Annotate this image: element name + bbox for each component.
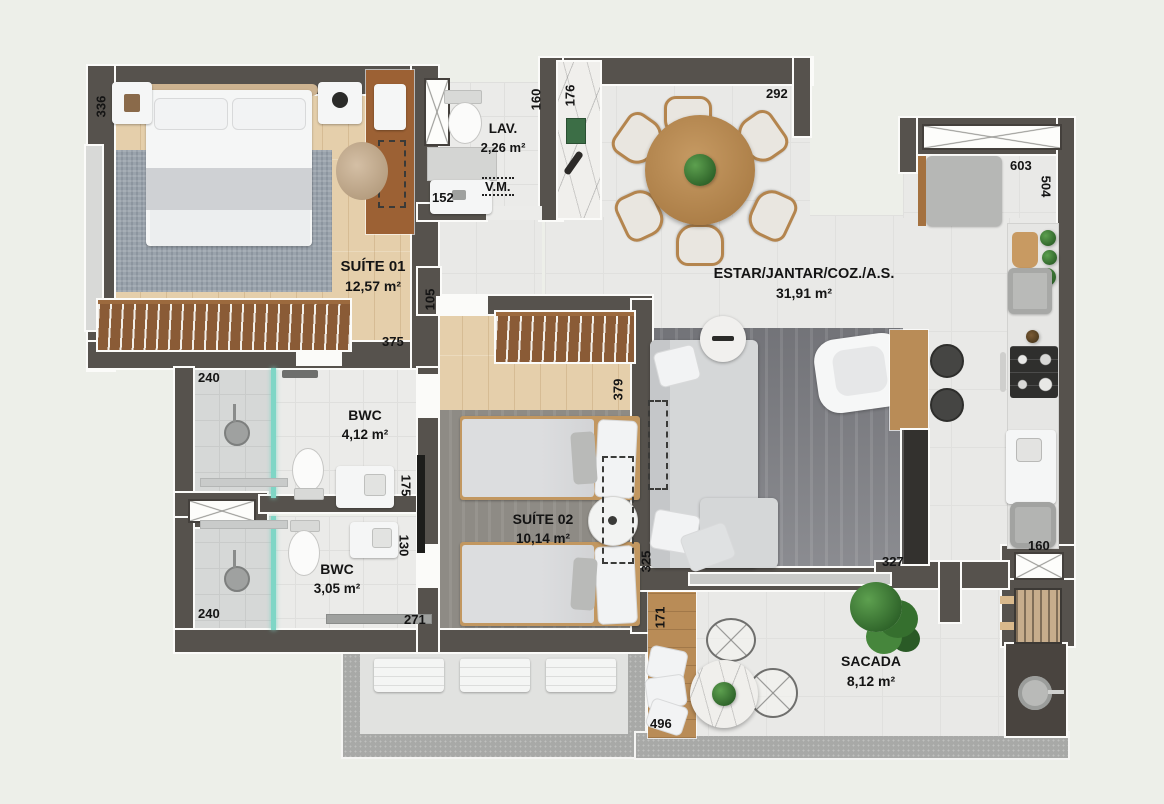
suite02-door-opening [436, 296, 488, 314]
room-label-suite02: SUÍTE 02 10,14 m² [488, 510, 598, 548]
bar-counter [890, 330, 928, 430]
floor-plan-canvas: SUÍTE 01 12,57 m² LAV. 2,26 m² V.M. BWC … [0, 0, 1164, 804]
lav-opening [486, 206, 542, 220]
ac-condenser-unit [460, 658, 530, 692]
wall [794, 58, 810, 136]
dim-175: 175 [398, 464, 414, 506]
room-area: 31,91 m² [696, 284, 912, 304]
pouf-chair [336, 142, 388, 200]
room-area: 2,26 m² [458, 139, 548, 157]
bar-stool [930, 388, 964, 422]
dim-text: 271 [404, 612, 426, 627]
wall [175, 630, 653, 652]
centerpiece-plant-icon [684, 154, 716, 186]
dim-text: 325 [639, 550, 654, 572]
room-area: 4,12 m² [320, 426, 410, 445]
wall [175, 368, 193, 500]
utility-shaft-grille [1014, 588, 1062, 644]
dim-292: 292 [766, 86, 788, 101]
dim-text: 379 [611, 378, 626, 400]
table-plant-icon [712, 682, 736, 706]
ac-condenser-unit [374, 658, 444, 692]
exit-sign [566, 118, 586, 144]
shower-ledge [200, 520, 288, 529]
shower-arm [233, 404, 236, 422]
dim-603: 603 [1010, 158, 1032, 173]
room-name: LAV. [458, 120, 548, 139]
dim-504: 504 [1038, 164, 1054, 208]
dim-text: 336 [94, 95, 109, 117]
ac-condenser-unit [546, 658, 616, 692]
room-name: SUÍTE 02 [488, 510, 598, 530]
fridge [926, 156, 1002, 226]
sink-faucet-icon [452, 190, 466, 200]
dim-text: 160 [529, 88, 544, 110]
room-name: BWC [320, 406, 410, 426]
bed-pillow-small [570, 431, 598, 485]
room-name: SACADA [816, 652, 926, 672]
wall [900, 118, 916, 172]
kettle-icon [1016, 438, 1042, 462]
bwc1-door-opening [418, 374, 438, 418]
shaft-bracket [1000, 622, 1014, 630]
herb-plant-icon [1042, 250, 1057, 265]
wall [940, 562, 960, 622]
dim-text: 175 [399, 474, 414, 496]
room-label-bwc2: BWC 3,05 m² [292, 560, 382, 598]
dim-160-top: 160 [528, 78, 544, 120]
small-plant-icon [1026, 330, 1039, 343]
wall [1058, 118, 1074, 552]
balcony-sliding-door [690, 574, 890, 584]
dim-text: 176 [563, 84, 578, 106]
table-lamp-icon [332, 92, 348, 108]
dim-text: 240 [198, 606, 220, 621]
dim-375: 375 [382, 334, 404, 349]
dim-text: 504 [1039, 175, 1054, 197]
dim-text: 292 [766, 86, 788, 101]
lav-window [424, 78, 450, 146]
oven-handle [1000, 352, 1006, 392]
shower-ledge [200, 478, 288, 487]
bed-blanket [146, 168, 312, 210]
vanity-sink-icon [372, 528, 392, 548]
bathroom-shelf [282, 370, 318, 378]
dim-text: 375 [382, 334, 404, 349]
cutting-board-icon [1012, 232, 1038, 268]
toilet-tank [294, 488, 324, 500]
projection-outline [602, 456, 634, 564]
herb-plant-icon [1040, 230, 1056, 246]
dim-text: 327 [882, 554, 904, 569]
dim-240-bottom: 240 [198, 606, 220, 621]
wire-chair [706, 618, 756, 662]
kitchen-divider-panel [918, 156, 926, 226]
dim-379: 379 [610, 368, 626, 410]
tv-rack [902, 430, 928, 564]
room-name: SUÍTE 01 [298, 256, 448, 277]
dining-chair [676, 224, 724, 266]
suite02-tv-panel [417, 455, 425, 553]
dim-text: 130 [397, 534, 412, 556]
dresser-tv [374, 84, 406, 130]
suite01-wardrobe [98, 300, 350, 350]
service-window [1014, 552, 1064, 580]
wash-basin-icon [1018, 676, 1052, 710]
dim-text: 603 [1010, 158, 1032, 173]
shaft-bracket [1000, 596, 1014, 604]
balcony-edge [636, 733, 1068, 758]
dim-160-right: 160 [1028, 538, 1050, 553]
dim-text: 171 [653, 606, 668, 628]
dim-176: 176 [562, 74, 578, 116]
room-label-bwc1: BWC 4,12 m² [320, 406, 410, 444]
bed-throw [150, 210, 310, 246]
room-label-vm: V.M. [482, 178, 514, 196]
shower-head-icon [224, 566, 250, 592]
vm-label: V.M. [482, 177, 514, 196]
room-area: 10,14 m² [488, 530, 598, 549]
bed-pillow-small [570, 557, 598, 611]
shower-arm [233, 550, 236, 568]
bed-pillow [154, 98, 228, 130]
projection-outline [648, 400, 668, 490]
dim-text: 152 [432, 190, 454, 205]
large-plant-icon [850, 582, 902, 632]
nightstand-decor [124, 94, 140, 112]
dim-240-top: 240 [198, 370, 220, 385]
basin-faucet [1048, 690, 1064, 694]
kitchen-sink [1008, 268, 1052, 314]
room-label-sacada: SACADA 8,12 m² [816, 652, 926, 691]
cooktop-icon [1010, 346, 1058, 398]
dim-325: 325 [638, 540, 654, 582]
dim-105: 105 [422, 278, 438, 320]
room-label-lav: LAV. 2,26 m² [458, 120, 548, 157]
bed-pillow [232, 98, 306, 130]
room-area: 3,05 m² [292, 580, 382, 599]
dim-336: 336 [92, 84, 110, 128]
room-label-living: ESTAR/JANTAR/COZ./A.S. 31,91 m² [696, 264, 912, 304]
side-table-slot [712, 336, 734, 341]
dim-text: 105 [423, 288, 438, 310]
suite02-wardrobe [496, 312, 634, 362]
shower-head-icon [224, 420, 250, 446]
dim-171: 171 [652, 596, 668, 638]
bar-stool [930, 344, 964, 378]
dim-130: 130 [396, 524, 412, 566]
vanity-sink-icon [364, 474, 386, 496]
room-area: 8,12 m² [816, 672, 926, 692]
kitchen-window [922, 124, 1062, 150]
dim-327: 327 [882, 554, 904, 569]
toilet-icon [292, 448, 324, 492]
shower-glass [271, 516, 276, 630]
dim-271: 271 [404, 612, 426, 627]
dim-152: 152 [432, 190, 454, 205]
room-name: ESTAR/JANTAR/COZ./A.S. [696, 264, 912, 284]
dim-496: 496 [650, 716, 672, 731]
dim-text: 160 [1028, 538, 1050, 553]
dim-text: 240 [198, 370, 220, 385]
room-name: BWC [292, 560, 382, 580]
armchair-cushion [831, 345, 889, 398]
dim-text: 496 [650, 716, 672, 731]
